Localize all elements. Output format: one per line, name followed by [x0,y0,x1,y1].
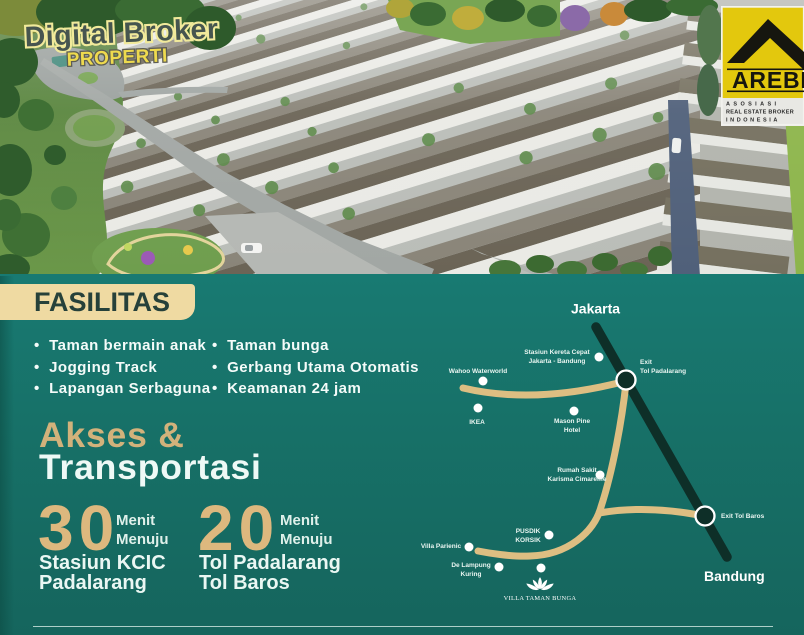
svg-text:Jakarta - Bandung: Jakarta - Bandung [529,358,586,365]
svg-text:Karisma Cimareme: Karisma Cimareme [548,476,607,483]
svg-text:AREBI: AREBI [732,67,804,93]
svg-text:PUSDIK: PUSDIK [516,528,541,535]
svg-text:Exit: Exit [640,359,653,366]
svg-text:Exit Tol Baros: Exit Tol Baros [721,513,765,520]
svg-text:Bandung: Bandung [704,568,765,584]
svg-text:KORSIK: KORSIK [515,537,541,544]
svg-text:REAL ESTATE BROKER: REAL ESTATE BROKER [726,110,794,116]
svg-text:VILLA TAMAN BUNGA: VILLA TAMAN BUNGA [504,595,577,602]
svg-text:Villa Parienic: Villa Parienic [421,543,462,550]
svg-text:ASOSIASI: ASOSIASI [726,102,779,108]
svg-text:Wahoo Waterworld: Wahoo Waterworld [449,368,507,375]
svg-text:IKEA: IKEA [469,419,485,426]
svg-text:Mason Pine: Mason Pine [554,418,591,425]
svg-text:Rumah Sakit: Rumah Sakit [557,467,597,474]
svg-text:Stasiun Kereta Cepat: Stasiun Kereta Cepat [524,349,590,356]
svg-text:INDONESIA: INDONESIA [726,118,780,124]
svg-text:Hotel: Hotel [564,427,580,434]
svg-text:De Lampung: De Lampung [451,562,490,569]
svg-text:Tol Padalarang: Tol Padalarang [640,368,686,375]
svg-text:PROPERTI: PROPERTI [66,45,168,70]
svg-text:Kuring: Kuring [461,571,482,578]
svg-text:Jakarta: Jakarta [571,301,620,317]
